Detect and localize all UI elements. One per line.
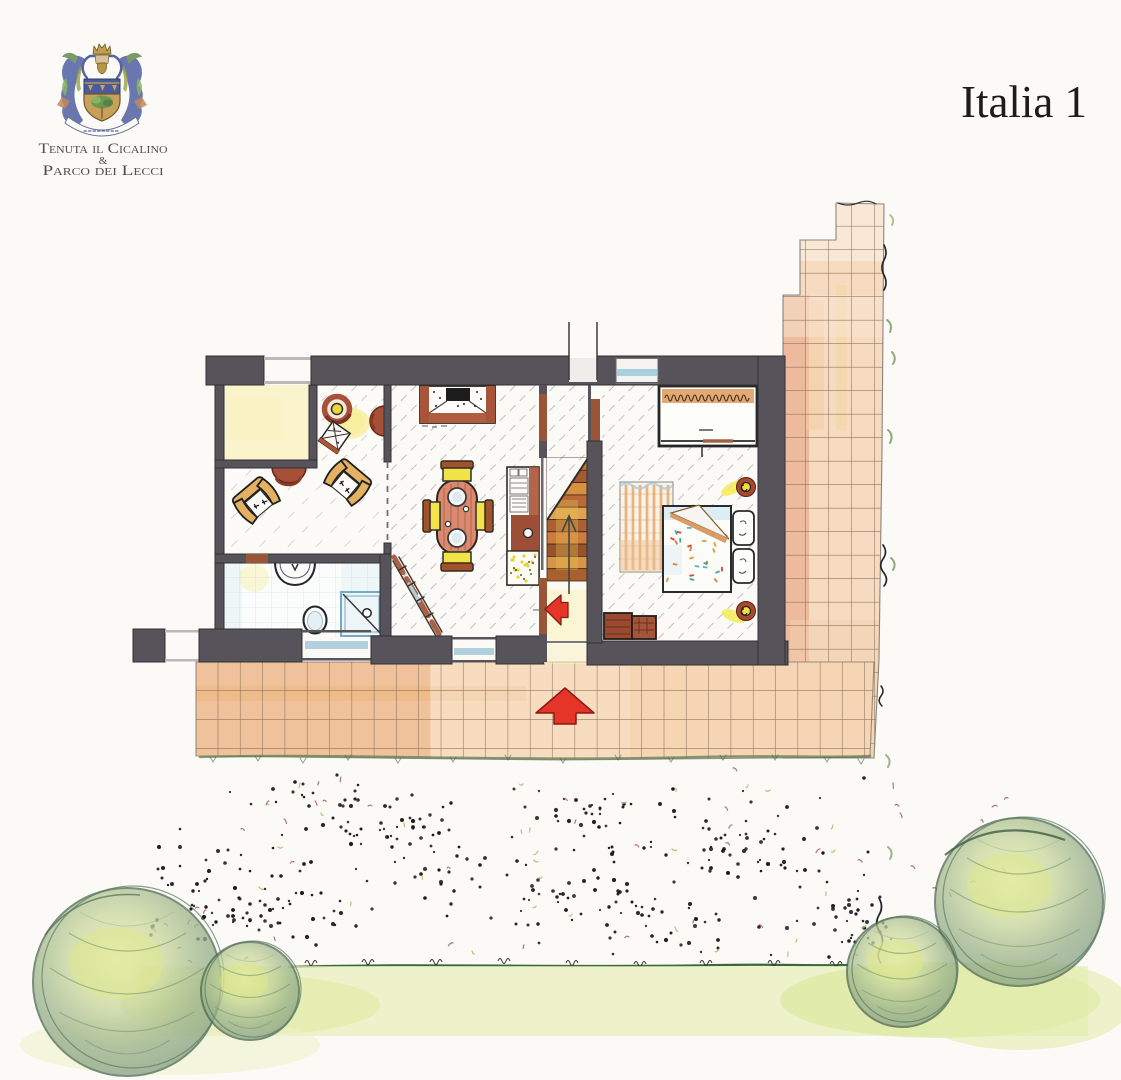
svg-text:Italia 1: Italia 1 (961, 76, 1087, 127)
svg-text:Parco dei Lecci: Parco dei Lecci (43, 163, 164, 179)
